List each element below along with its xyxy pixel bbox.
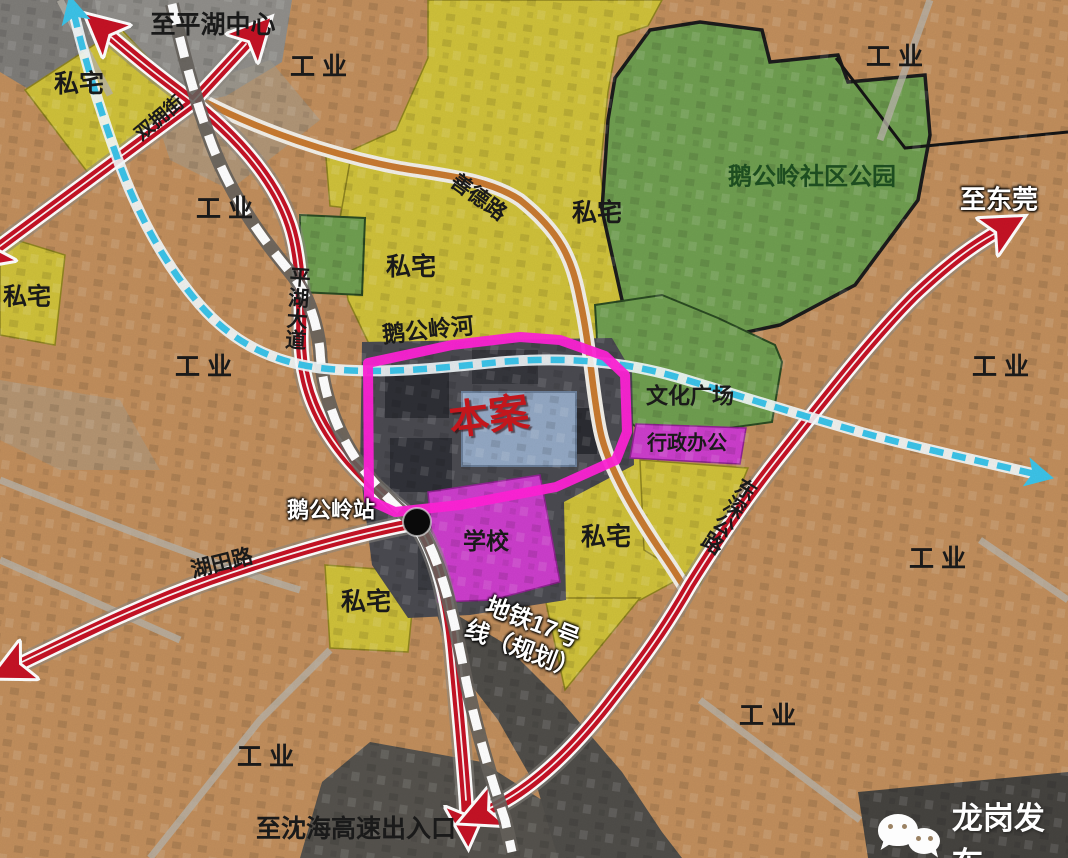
label-culture-square: 文化广场 — [646, 384, 734, 407]
label-to-shenhai-expressway: 至沈海高速出入口 — [256, 816, 456, 842]
label-housing-3: 私宅 — [386, 254, 436, 280]
label-community-park: 鹅公岭社区公园 — [728, 164, 896, 189]
label-industrial-3: 工业 — [196, 196, 260, 222]
label-housing-5: 私宅 — [581, 524, 631, 550]
watermark: 龙岗发布 — [878, 793, 1068, 858]
label-industrial-1: 工业 — [290, 54, 354, 80]
wechat-icon — [878, 814, 938, 858]
label-housing-4: 私宅 — [572, 200, 622, 226]
label-housing-1: 私宅 — [54, 71, 104, 97]
label-industrial-4: 工业 — [175, 354, 239, 380]
label-housing-6: 私宅 — [341, 589, 391, 615]
label-industrial-7: 工业 — [739, 703, 803, 729]
label-egongling-station: 鹅公岭站 — [287, 498, 375, 521]
label-site: 本案 — [447, 391, 532, 442]
label-housing-2: 私宅 — [3, 284, 51, 309]
label-to-dongguan: 至东莞 — [960, 186, 1038, 213]
label-industrial-6: 工业 — [909, 546, 973, 572]
label-industrial-2: 工业 — [866, 44, 930, 70]
watermark-text: 龙岗发布 — [952, 793, 1068, 858]
label-industrial-5: 工业 — [972, 354, 1036, 380]
label-industrial-8: 工业 — [237, 744, 301, 770]
label-school: 学校 — [463, 529, 509, 553]
label-admin-office: 行政办公 — [647, 434, 727, 455]
planning-map: 至平湖中心 至东莞 至沈海高速出入口 工业 工业 工业 工业 工业 工业 工业 … — [0, 0, 1068, 858]
label-pinghu-avenue: 平湖大道 — [282, 265, 310, 350]
label-to-pinghu-center: 至平湖中心 — [150, 12, 275, 38]
